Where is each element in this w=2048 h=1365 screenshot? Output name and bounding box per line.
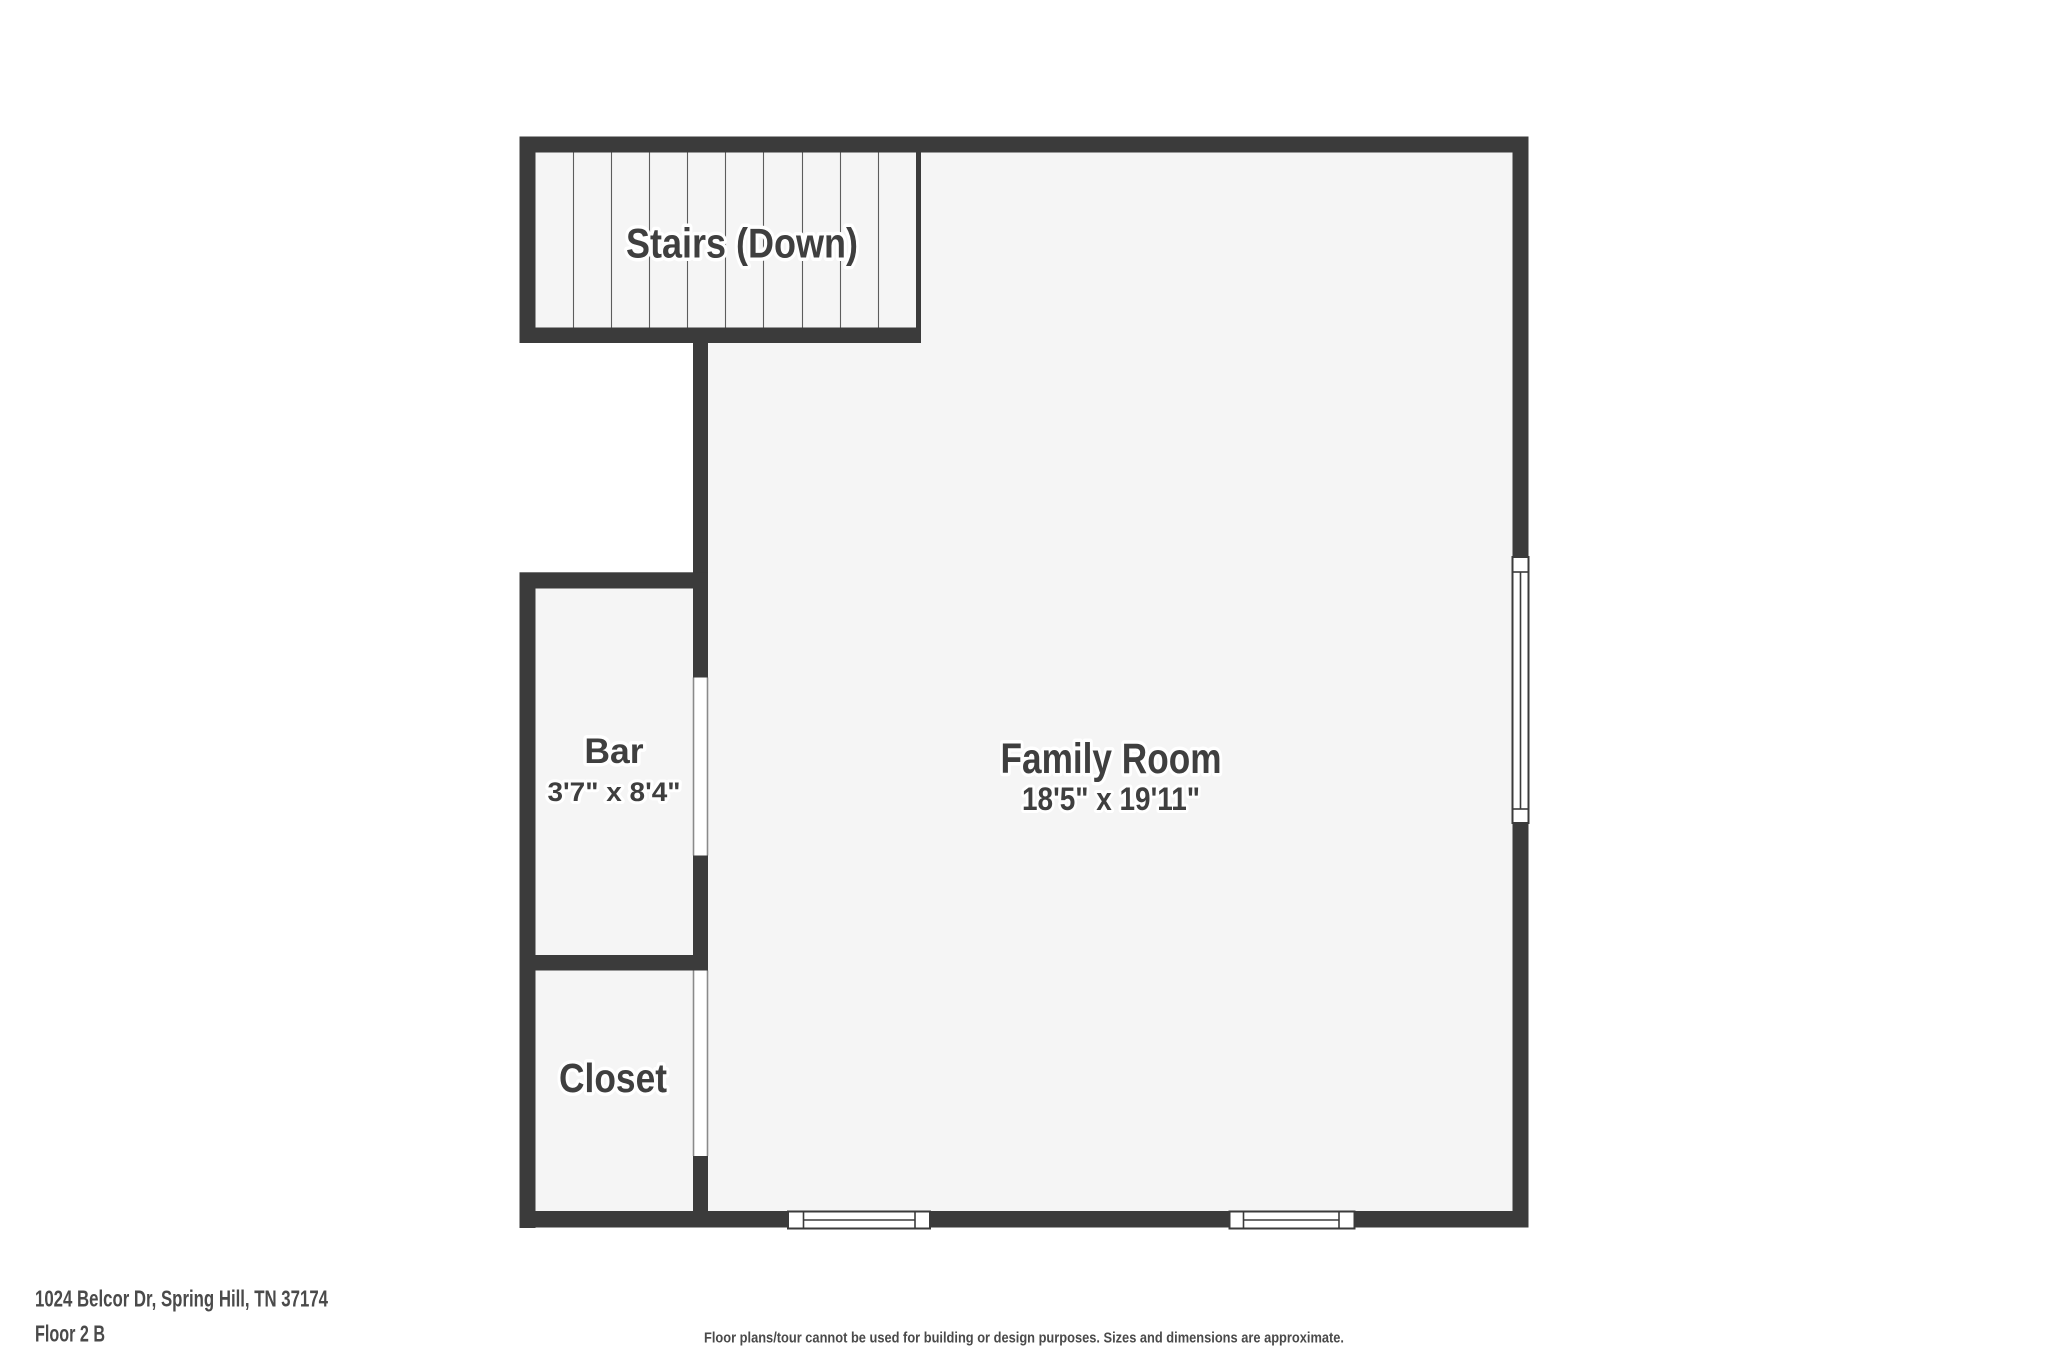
- svg-text:Floor 2 B: Floor 2 B: [35, 1320, 105, 1346]
- svg-text:3'7" x 8'4": 3'7" x 8'4": [548, 777, 681, 807]
- svg-text:Family Room: Family Room: [1001, 735, 1222, 783]
- svg-text:Stairs (Down): Stairs (Down): [626, 219, 858, 266]
- svg-text:1024 Belcor Dr, Spring Hill, T: 1024 Belcor Dr, Spring Hill, TN 37174: [35, 1285, 328, 1311]
- svg-text:Floor plans/tour cannot be use: Floor plans/tour cannot be used for buil…: [704, 1331, 1344, 1347]
- svg-text:18'5" x 19'11": 18'5" x 19'11": [1022, 781, 1200, 817]
- svg-text:Bar: Bar: [584, 731, 643, 771]
- svg-text:Closet: Closet: [559, 1055, 667, 1101]
